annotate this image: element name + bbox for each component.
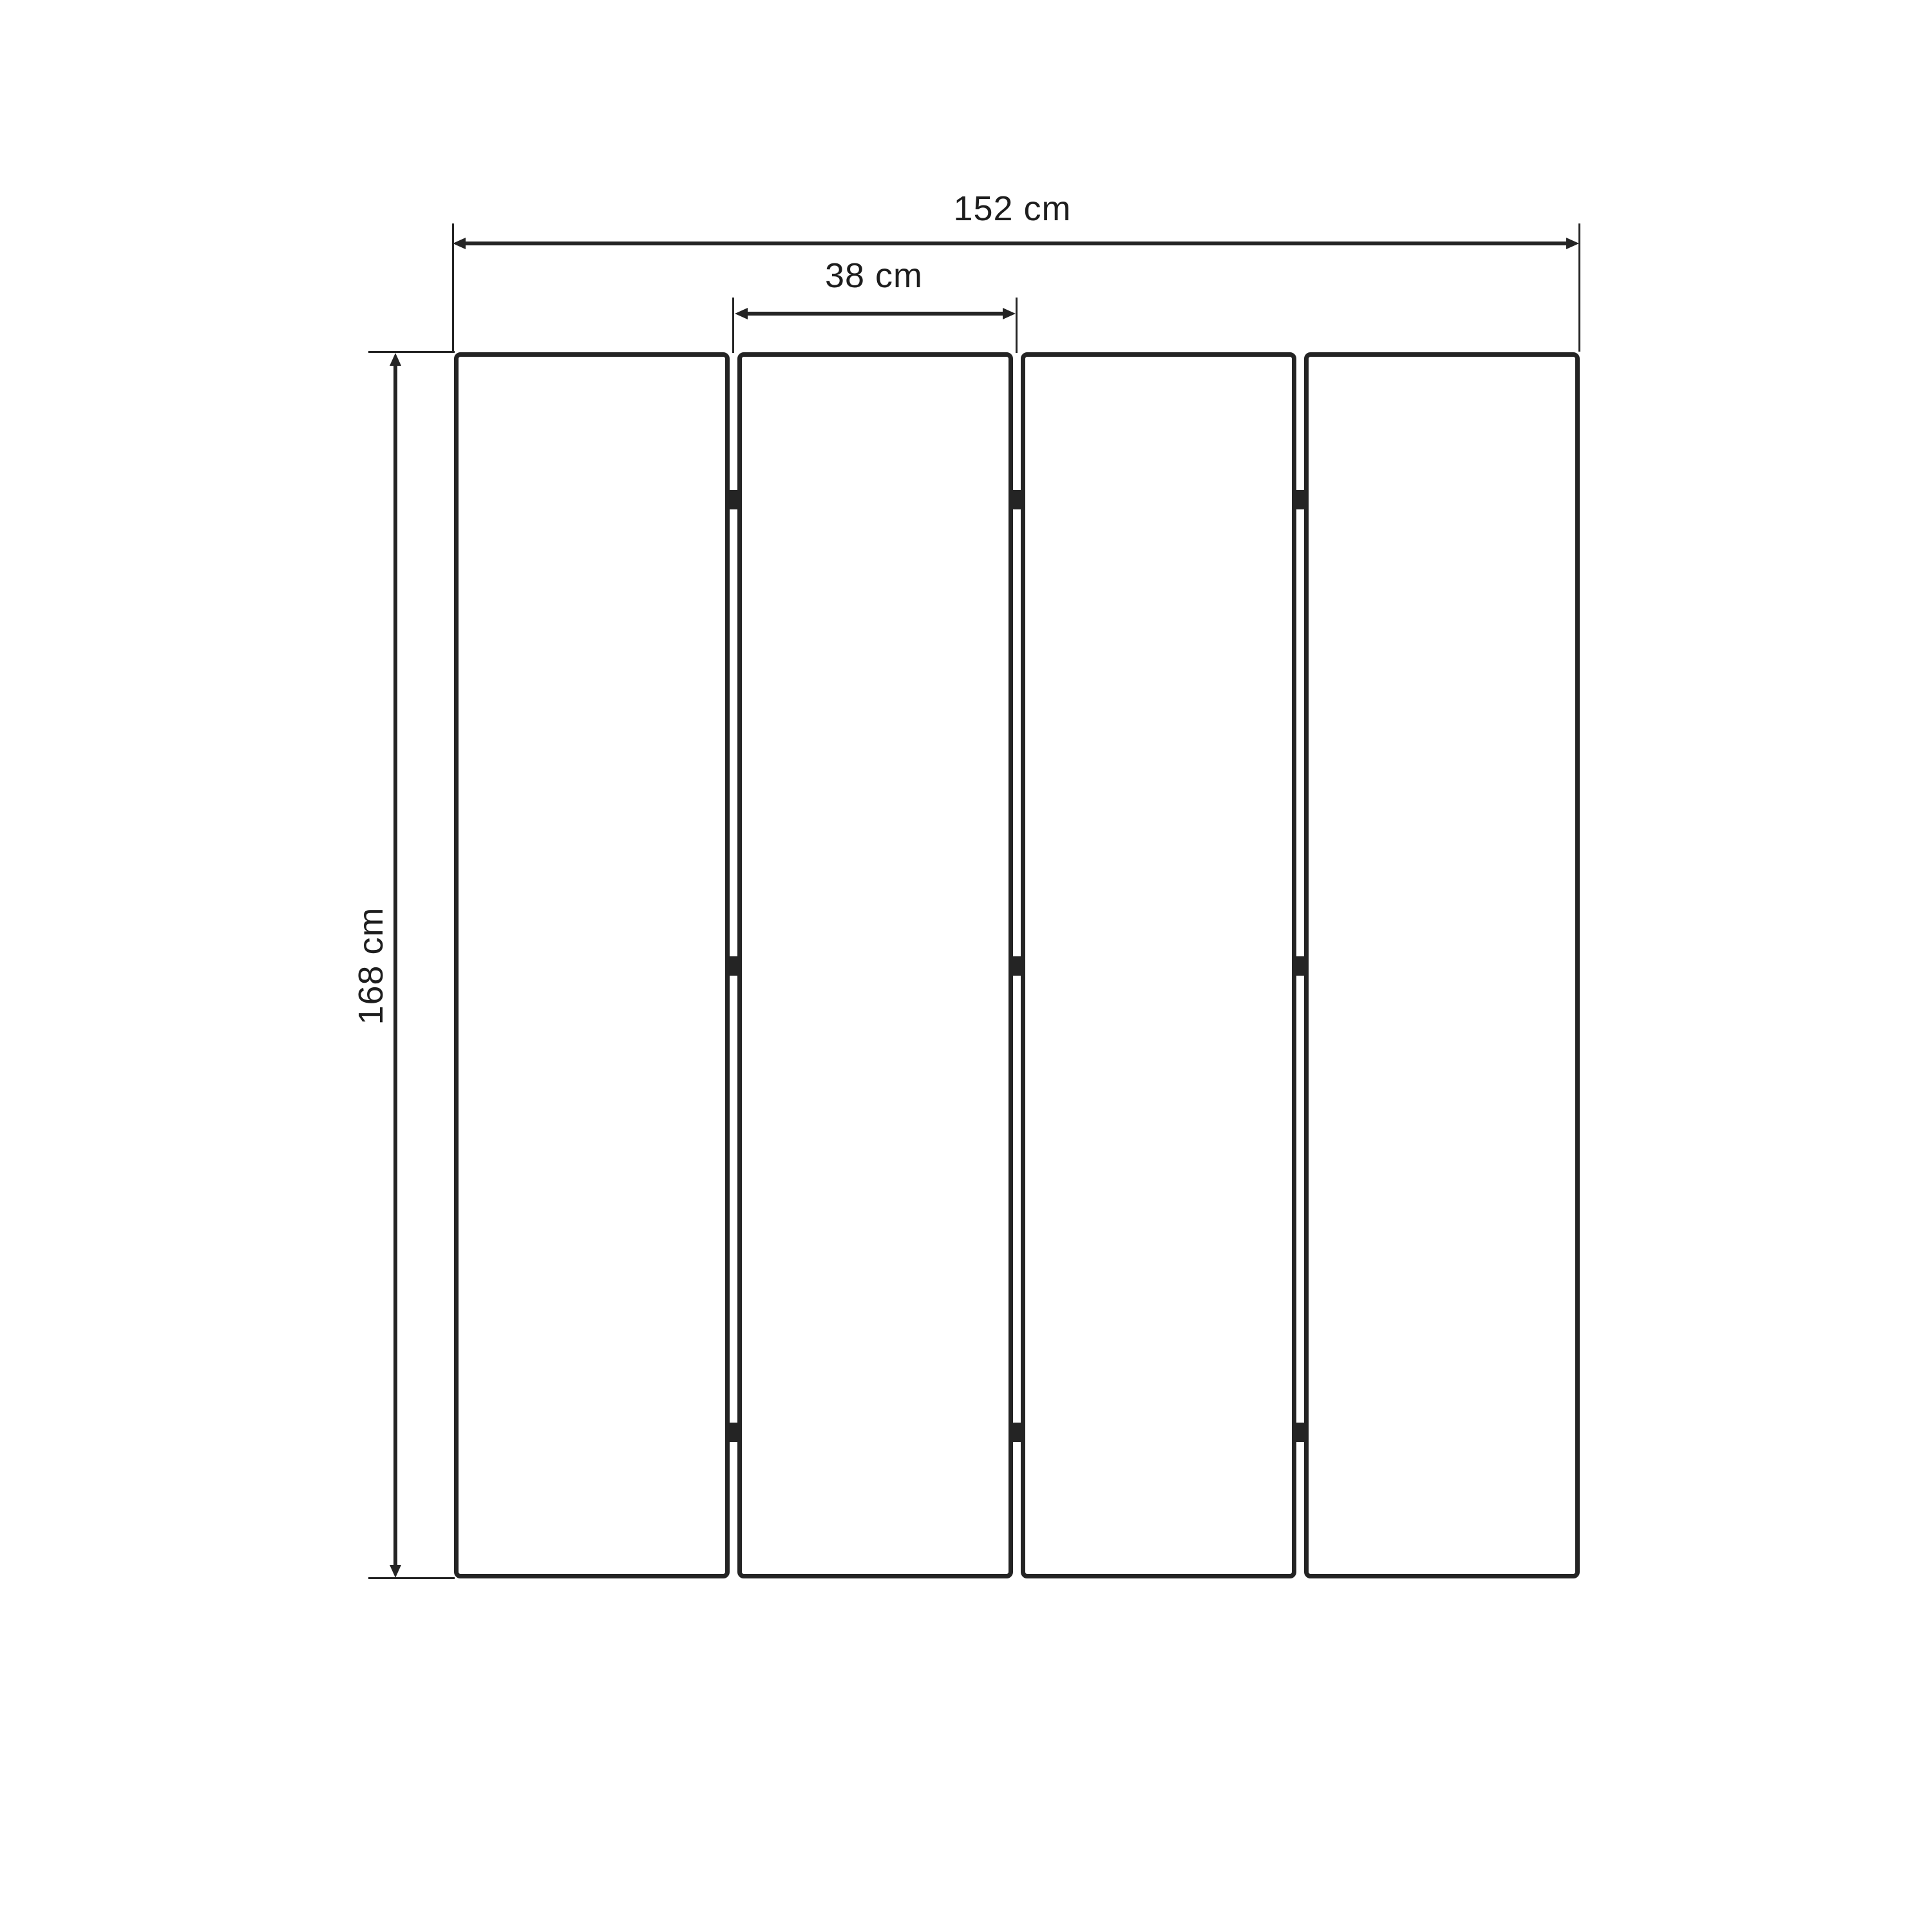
hinge-marker — [1295, 490, 1305, 509]
extension-line-top — [368, 351, 455, 353]
hinge-marker — [1295, 956, 1305, 976]
arrowhead-up-icon — [390, 353, 401, 366]
arrowhead-left-icon — [453, 238, 466, 249]
hinge-marker — [1012, 1423, 1022, 1442]
dimension-height-label: 168 cm — [354, 907, 388, 1025]
arrowhead-right-icon — [1566, 238, 1579, 249]
arrowhead-down-icon — [390, 1565, 401, 1578]
dimension-line — [459, 241, 1574, 245]
arrowhead-right-icon — [1003, 308, 1016, 319]
divider-panel-1 — [454, 352, 730, 1578]
dimension-drawing-canvas: 152 cm 38 cm 168 cm — [0, 0, 1932, 1932]
hinge-marker — [728, 956, 739, 976]
divider-panel-3 — [1021, 352, 1296, 1578]
extension-line-left — [732, 298, 734, 353]
divider-panel-4 — [1304, 352, 1580, 1578]
arrowhead-left-icon — [735, 308, 748, 319]
hinge-marker — [1012, 956, 1022, 976]
dimension-total-width-label: 152 cm — [953, 191, 1071, 226]
dimension-panel-width-label: 38 cm — [825, 258, 923, 293]
hinge-marker — [1295, 1423, 1305, 1442]
dimension-line — [393, 358, 397, 1573]
hinge-marker — [728, 1423, 739, 1442]
divider-panel-2 — [737, 352, 1013, 1578]
dimension-line — [741, 312, 1011, 316]
hinge-marker — [1012, 490, 1022, 509]
hinge-marker — [728, 490, 739, 509]
extension-line-bottom — [368, 1577, 455, 1579]
extension-line-right — [1016, 298, 1018, 353]
